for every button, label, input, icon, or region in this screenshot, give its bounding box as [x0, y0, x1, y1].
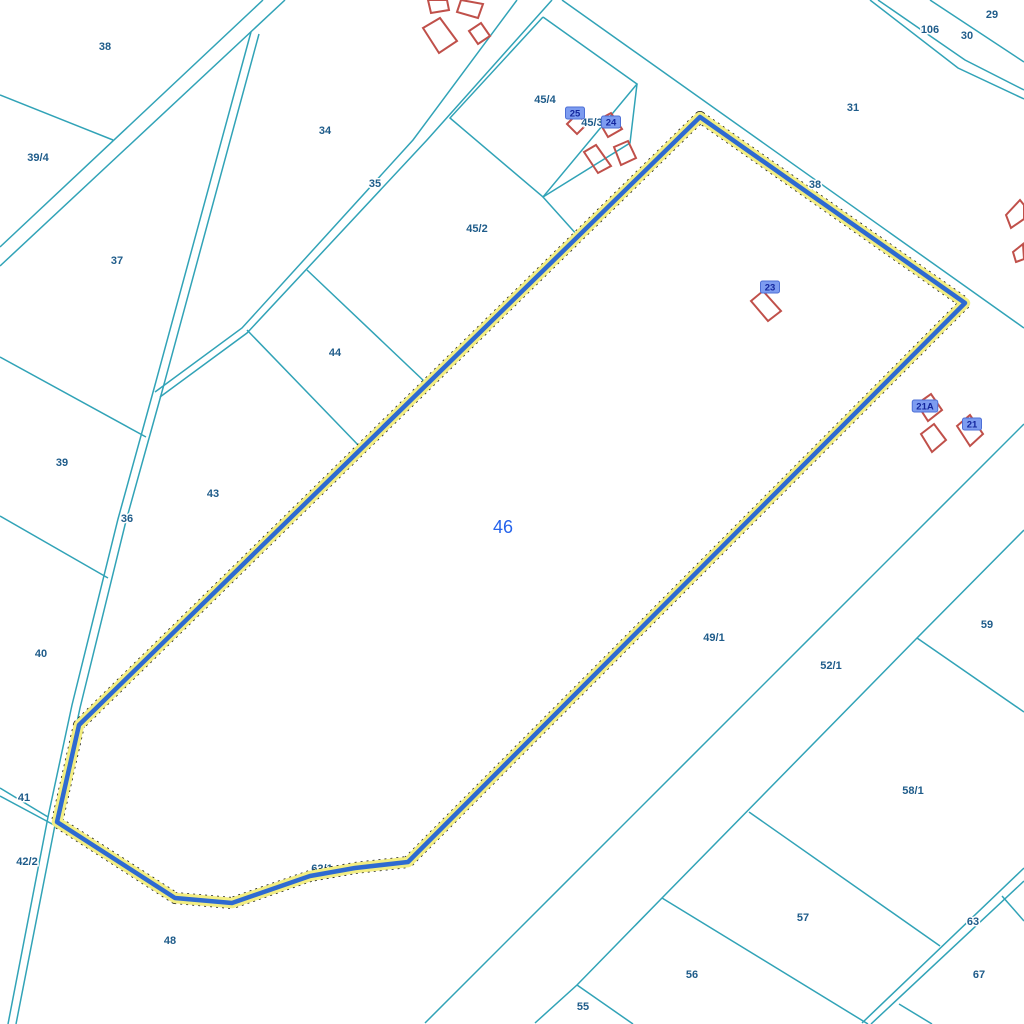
- parcel-label-42-2[interactable]: 42/2: [16, 856, 37, 868]
- parcel-boundary-line: [247, 330, 361, 448]
- building-badge-21A[interactable]: 21A: [916, 402, 934, 413]
- parcel-label-45-2[interactable]: 45/2: [466, 223, 487, 235]
- building-badge-24[interactable]: 24: [606, 118, 617, 129]
- parcel-label-36[interactable]: 36: [121, 513, 133, 525]
- parcel-boundary-line: [862, 868, 1024, 1023]
- parcel-boundary-line: [155, 0, 517, 392]
- parcel-boundary-line: [0, 516, 108, 578]
- cadastral-map-viewport[interactable]: 62/1383839/439/434343535373745/445/445/3…: [0, 0, 1024, 1024]
- parcel-boundary-line: [307, 270, 425, 382]
- parcel-label-59[interactable]: 59: [981, 619, 993, 631]
- building-badge-23[interactable]: 23: [765, 283, 776, 294]
- parcel-label-58-1[interactable]: 58/1: [902, 785, 923, 797]
- parcel-label-56[interactable]: 56: [686, 969, 698, 981]
- parcel-boundary-line: [0, 0, 263, 247]
- parcel-label-45-3[interactable]: 45/3: [581, 117, 602, 129]
- selected-parcel-highlight-halo: [57, 117, 965, 903]
- parcel-label-34[interactable]: 34: [319, 125, 332, 137]
- building-outline: [428, 0, 449, 13]
- parcel-label-38[interactable]: 38: [99, 41, 111, 53]
- parcel-boundary-line: [0, 0, 285, 266]
- parcel-label-44[interactable]: 44: [329, 347, 342, 359]
- building-outline: [423, 18, 457, 53]
- parcel-label-29[interactable]: 29: [986, 9, 998, 21]
- parcel-boundary-line: [0, 357, 146, 437]
- building-outline: [614, 141, 636, 165]
- parcel-label-63[interactable]: 63: [967, 916, 979, 928]
- parcel-label-48[interactable]: 48: [164, 935, 176, 947]
- parcel-label-57[interactable]: 57: [797, 912, 809, 924]
- parcel-boundary-line: [1002, 896, 1024, 921]
- parcel-boundary-line: [749, 812, 940, 946]
- building-outline: [1006, 200, 1024, 228]
- selected-parcel-number-label[interactable]: 46: [493, 517, 513, 537]
- parcel-label-41[interactable]: 41: [18, 792, 30, 804]
- parcel-label-39[interactable]: 39: [56, 457, 68, 469]
- parcel-label-37[interactable]: 37: [111, 255, 123, 267]
- parcel-label-49-1[interactable]: 49/1: [703, 632, 724, 644]
- parcel-label-67[interactable]: 67: [973, 969, 985, 981]
- building-outline: [457, 0, 483, 18]
- parcel-label-30[interactable]: 30: [961, 30, 973, 42]
- parcel-label-40[interactable]: 40: [35, 648, 47, 660]
- parcel-boundary-line: [0, 95, 113, 140]
- parcel-boundary-line: [899, 1004, 932, 1024]
- cadastral-map-canvas[interactable]: 62/1383839/439/434343535373745/445/445/3…: [0, 0, 1024, 1024]
- parcel-label-31[interactable]: 31: [847, 102, 859, 114]
- parcel-label-106[interactable]: 106: [921, 24, 939, 36]
- building-outline: [1013, 244, 1024, 262]
- parcel-boundary-line: [543, 197, 578, 236]
- parcel-boundary-line: [871, 881, 1024, 1024]
- parcel-label-45-4[interactable]: 45/4: [534, 94, 556, 106]
- building-badge-25[interactable]: 25: [570, 109, 581, 120]
- parcel-label-55[interactable]: 55: [577, 1001, 589, 1013]
- parcel-label-39-4[interactable]: 39/4: [27, 152, 49, 164]
- building-outline: [921, 424, 946, 452]
- building-badge-21[interactable]: 21: [967, 420, 978, 431]
- parcel-label-35[interactable]: 35: [369, 178, 381, 190]
- parcel-boundary-line: [662, 898, 868, 1024]
- parcel-label-52-1[interactable]: 52/1: [820, 660, 841, 672]
- parcel-label-43[interactable]: 43: [207, 488, 219, 500]
- parcel-boundary-line: [917, 638, 1024, 712]
- parcel-boundary-line: [930, 0, 1024, 62]
- parcel-boundary-line: [870, 0, 1024, 99]
- parcel-label-38[interactable]: 38: [809, 179, 821, 191]
